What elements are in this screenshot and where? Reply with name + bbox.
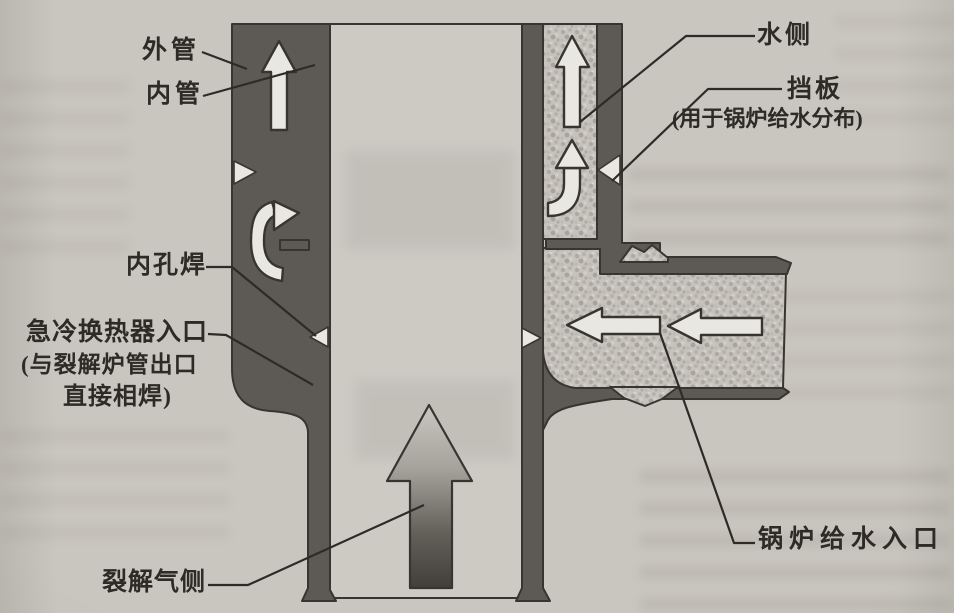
page-bleedthrough xyxy=(345,150,515,250)
textbook-figure-page: 外管 内管 水侧 挡板 (用于锅炉给水分布) 内孔焊 急冷换热器入口 (与裂解炉… xyxy=(0,0,954,613)
label-inner-tube: 内管 xyxy=(146,81,204,109)
label-outer-tube: 外管 xyxy=(142,37,200,65)
label-quench-inlet-line3: 直接相焊) xyxy=(63,384,172,410)
label-quench-inlet-line1: 急冷换热器入口 xyxy=(26,319,208,347)
label-baffle-note: (用于锅炉给水分布) xyxy=(672,107,863,131)
label-quench-inlet-line2: (与裂解炉管出口 xyxy=(21,352,198,377)
label-cracked-gas-side: 裂解气侧 xyxy=(102,569,206,597)
baffle-plate xyxy=(280,240,309,250)
label-boiler-feedwater-inlet: 锅炉给水入口 xyxy=(758,526,944,554)
leader-baffle xyxy=(612,89,782,181)
label-inner-bore-weld: 内孔焊 xyxy=(126,252,207,280)
label-water-side: 水侧 xyxy=(757,22,813,50)
label-baffle: 挡板 xyxy=(787,76,843,104)
